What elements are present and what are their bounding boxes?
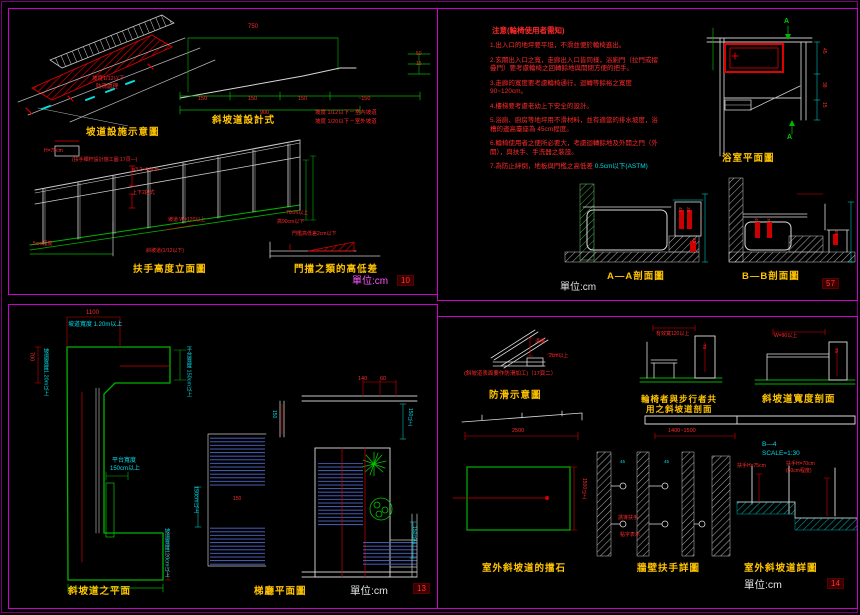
q4-slip-ann-2: 2cm以上 bbox=[549, 354, 568, 360]
q4-detail-dim-r2: (50cm程度) bbox=[786, 469, 812, 475]
q1-profile-dim-top: 750 bbox=[248, 24, 258, 31]
q1-iso-note-1: 坡度1/12以下 bbox=[92, 76, 125, 82]
q1-rail-ann-2: 上下2段式 bbox=[132, 191, 155, 197]
q4-share-height: 75 bbox=[702, 344, 707, 349]
q4-detail-title: 室外斜坡道詳圖 bbox=[744, 564, 818, 575]
q2-note-3: 3.走廊的寬度要考慮輪椅通行，迴轉等餘裕之寬度 90~120cm。 bbox=[490, 80, 662, 97]
q1-profile-seg-1: 150 bbox=[198, 96, 207, 102]
q1-rail-title: 扶手高度立面圖 bbox=[133, 265, 207, 276]
q1-iso-note-2: 防滑處理 bbox=[96, 84, 118, 90]
q4-wall-title: 牆壁扶手詳圖 bbox=[637, 564, 700, 575]
q1-door-title: 門擋之類的高低差 bbox=[294, 265, 378, 276]
q4-width-title: 斜坡道寬度剖面 bbox=[762, 395, 836, 406]
q2-plan-dim-3: 15 bbox=[820, 102, 826, 108]
q2-page-number: 57 bbox=[822, 278, 839, 289]
q2-note-4: 4.樓梯要考慮老幼上下安全的設計。 bbox=[490, 103, 662, 112]
q1-ramp-drawings bbox=[8, 8, 437, 294]
q4-detail-scale: SCALE=1:30 bbox=[762, 450, 800, 457]
q4-slip-ann-1: 溝槽 bbox=[535, 340, 545, 346]
q3-plan2-title: 梯廳平面圖 bbox=[254, 587, 307, 598]
q2-note-1: 1.出入口的地坪要平坦，不滑並便於輪椅進出。 bbox=[490, 42, 662, 51]
q3-stair-ann: 150cm以上 bbox=[192, 486, 198, 514]
q2-secA-dim-1: 45 bbox=[678, 207, 683, 212]
q3-plan2-ann-r2: 150以上 bbox=[410, 526, 416, 544]
q3-plan1-ann-mid-2: 150cm以上 bbox=[110, 466, 140, 473]
q4-curb-dim-1: 2500 bbox=[512, 428, 524, 434]
q3-plan1-ann-right: 平台寬度 150cm以上 bbox=[185, 346, 191, 397]
q1-rail-grade-label: 斜坡道(1/12以下) bbox=[146, 249, 184, 255]
q3-plan1-ann-left: 坡道寬度1.20m以上 bbox=[42, 348, 48, 396]
q2-section-a-title: A—A剖面圖 bbox=[607, 272, 665, 283]
q4-bar-dim: 1400~1500 bbox=[668, 428, 696, 434]
q1-rail-dim-r1: 70cm以上 bbox=[286, 211, 308, 217]
q1-profile-dim-r2: 15 bbox=[416, 62, 422, 68]
q4-page-number: 14 bbox=[827, 578, 844, 589]
q2-unit-label: 單位:cm bbox=[560, 282, 596, 294]
q4-slip-note: (斜坡道表面要作防滑加工)（17頁二） bbox=[464, 371, 556, 377]
q1-profile-seg-4: ~150 bbox=[358, 96, 370, 102]
q2-section-marker-top: A bbox=[784, 18, 789, 26]
q3-plan1-dim-left: 700 bbox=[28, 352, 34, 361]
q4-curb-dim-2: 1500以上 bbox=[580, 478, 586, 499]
q4-wall-ann-2: 點字表示 bbox=[620, 533, 640, 539]
q3-plan1-ann-top: 坡道寬度 1.20m以上 bbox=[68, 322, 122, 329]
q1-profile-title: 斜坡道設計式 bbox=[212, 116, 275, 127]
q2-secB-dim-1: 45 bbox=[754, 218, 759, 223]
q2-plan-dim-1: 45 bbox=[820, 48, 826, 54]
cad-sheet: 坡度1/12以下 防滑處理 坡道設施示意圖 750 150 150 150 ~1… bbox=[0, 0, 860, 615]
q4-unit-label: 單位:cm bbox=[744, 579, 782, 591]
q3-plan1-ann-bottom: 坡道寬度120cm以上 bbox=[163, 528, 169, 578]
q3-plan2-dim-a: 140 bbox=[358, 376, 367, 382]
q4-slip-title: 防滑示意圖 bbox=[489, 391, 542, 402]
q4-wall-ann-1: 誘導扶手 bbox=[618, 516, 638, 522]
q4-detail-dim-left: 扶手H=75cm bbox=[737, 464, 766, 470]
q1-page-number: 10 bbox=[397, 275, 414, 286]
q3-unit-label: 單位:cm bbox=[350, 585, 388, 597]
q4-width-height: 75 bbox=[834, 348, 839, 353]
q2-plan-title: 浴室平面圖 bbox=[722, 154, 775, 165]
q4-width-dim: W=90以上 bbox=[774, 334, 797, 340]
q1-formula-2: 坡度 1/20以下－室外坡道 bbox=[315, 119, 377, 125]
q3-plan2-ann-r1: 150以上 bbox=[406, 408, 412, 426]
q4-curb-title: 室外斜坡道的擋石 bbox=[482, 564, 566, 575]
q2-note-7-red: 7.為防止絆倒，地板與門檻之高低差 bbox=[490, 163, 595, 170]
q3-plan-drawings bbox=[8, 304, 437, 608]
q1-iso-title: 坡道設施示意圖 bbox=[86, 128, 160, 139]
q2-secB-dim-2: 70 bbox=[766, 218, 771, 223]
q3-stair-dim: 150 bbox=[233, 497, 241, 503]
q2-notes-list: 1.出入口的地坪要平坦，不滑並便於輪椅進出。 2.玄關出入口之寬，走廊出入口皆同… bbox=[490, 42, 662, 178]
q1-profile-seg-2: 150 bbox=[248, 96, 257, 102]
q2-section-b-title: B—B剖面圖 bbox=[742, 272, 800, 283]
q4-share-dim: 有效寬120以上 bbox=[656, 332, 689, 338]
q1-rail-slope-label: 坡道 W=120以上 bbox=[168, 218, 205, 224]
q3-page-number: 13 bbox=[413, 583, 430, 594]
q2-secA-dim-3: 35 bbox=[692, 238, 697, 243]
q1-rail-note: (扶手欄杆設計施工圖 17頁—) bbox=[72, 158, 137, 164]
q4-detail-dim-r1: 扶手H=70cm bbox=[786, 462, 815, 468]
q3-plan1-title: 斜坡道之平面 bbox=[68, 587, 131, 598]
q1-profile-seg-3: 150 bbox=[298, 96, 307, 102]
q1-rail-dim-r2: 高90cm以下 bbox=[277, 220, 304, 226]
q2-plan-dim-2: 38 bbox=[820, 82, 826, 88]
q2-secB-dim-3: 35 bbox=[834, 230, 839, 235]
q2-note-7: 7.為防止絆倒，地板與門檻之高低差 0.5cm以下(ASTM) bbox=[490, 163, 662, 172]
q1-door-note: 門檻高低差2cm以下 bbox=[292, 232, 336, 238]
q2-section-marker-bottom: A bbox=[787, 134, 792, 142]
q4-detail-ref: B—4 bbox=[762, 441, 776, 448]
q1-rail-left-label: 5cm程度 bbox=[33, 242, 52, 248]
q2-secA-dim-2: 38 bbox=[686, 207, 691, 212]
q2-note-6: 6.輪椅使用者之便所必要大，考慮迴轉餘地及外開之門（外開），與扶手、手洗器之裝設… bbox=[490, 140, 662, 157]
q3-plan2-dim-c: 150 bbox=[270, 410, 276, 418]
q1-rail-height-label: H=75cm bbox=[44, 149, 63, 155]
q2-note-2: 2.玄關出入口之寬，走廊出入口皆同樣，浴廁門（拉門或摺疊門）要考慮輪椅之回轉餘地… bbox=[490, 57, 662, 74]
q4-wall-dim-1: 45 bbox=[620, 459, 625, 464]
q1-rail-ann-1: φ3.2~4.8cm bbox=[132, 168, 159, 174]
q4-share-title-line2: 用之斜坡道剖面 bbox=[646, 405, 713, 415]
q2-note-7-cyan: 0.5cm以下(ASTM) bbox=[595, 163, 648, 170]
q2-note-5: 5.浴廁、廚房等地坪用不滑材料，並有適當的排水坡度，浴槽的邊高臺座為 45cm程… bbox=[490, 117, 662, 134]
q1-formula-1: 坡度 1/12以下－室內坡道 bbox=[315, 110, 377, 116]
q3-plan1-dim-top: 1100 bbox=[86, 310, 99, 317]
q4-wall-dim-2: 45 bbox=[664, 459, 669, 464]
q3-plan1-ann-mid-1: 平台寬度 bbox=[112, 458, 136, 465]
q2-notes-title: 注意(輪椅使用者需知) bbox=[492, 27, 565, 36]
q3-plan2-dim-b: 60 bbox=[380, 376, 386, 382]
q1-profile-dim-r1: 50 bbox=[416, 52, 422, 58]
q1-unit-label: 單位:cm bbox=[352, 276, 388, 288]
